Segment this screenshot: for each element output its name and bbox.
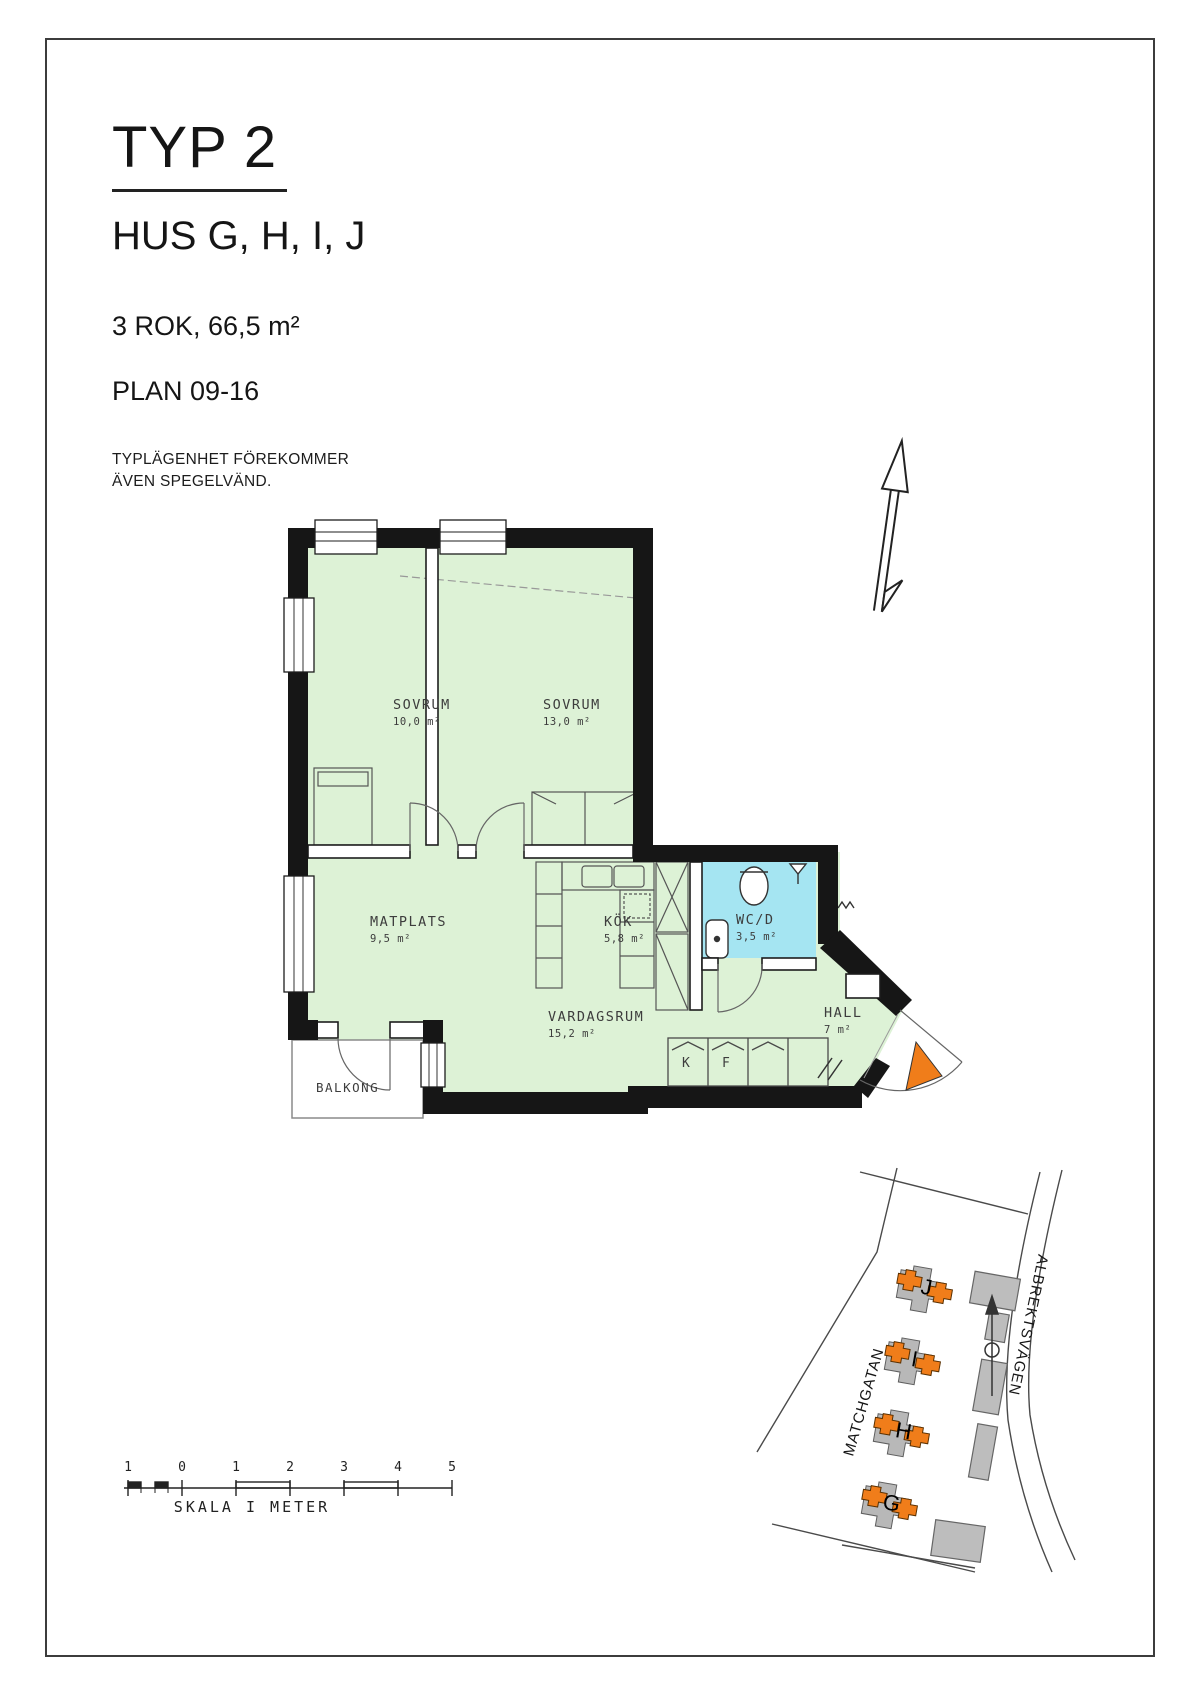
houses-subtitle: HUS G, H, I, J xyxy=(112,214,365,259)
room-label-sovrum-1: SOVRUM 10,0 m² xyxy=(393,697,451,728)
room-area: 13,0 m² xyxy=(543,716,601,728)
room-name: BALKONG xyxy=(316,1080,379,1095)
title-block: TYP 2 HUS G, H, I, J 3 ROK, 66,5 m² PLAN… xyxy=(112,118,365,493)
site-plan: J I H G xyxy=(757,1168,1075,1572)
site-building-G: G xyxy=(858,1479,921,1532)
scale-bar xyxy=(124,1480,452,1496)
drawing-sheet: J I H G xyxy=(0,0,1200,1697)
scale-number: 1 xyxy=(232,1460,240,1475)
scale-caption: SKALA I METER xyxy=(174,1498,330,1516)
street-matchgatan-line xyxy=(757,1168,897,1452)
mirror-note-line2: ÄVEN SPEGELVÄND. xyxy=(112,471,365,493)
scale-number: 3 xyxy=(340,1460,348,1475)
radiator-icon xyxy=(838,902,854,908)
site-buildings-gray xyxy=(931,1271,1021,1562)
mirror-note-line1: TYPLÄGENHET FÖREKOMMER xyxy=(112,449,365,471)
plan-levels: PLAN 09-16 xyxy=(112,376,365,407)
mirror-note: TYPLÄGENHET FÖREKOMMER ÄVEN SPEGELVÄND. xyxy=(112,449,365,493)
site-building-I: I xyxy=(881,1335,944,1388)
scale-number: 5 xyxy=(448,1460,456,1475)
room-name: SOVRUM xyxy=(393,697,451,713)
room-area: 15,2 m² xyxy=(548,1028,644,1040)
north-arrow-icon xyxy=(865,439,922,614)
room-label-kok: KÖK 5,8 m² xyxy=(604,914,645,945)
room-name: VARDAGSRUM xyxy=(548,1009,644,1025)
closet-label-f: F xyxy=(722,1056,730,1071)
room-name: KÖK xyxy=(604,914,645,930)
room-label-matplats: MATPLATS 9,5 m² xyxy=(370,914,447,945)
room-area: 10,0 m² xyxy=(393,716,451,728)
scale-number: 4 xyxy=(394,1460,402,1475)
room-name: SOVRUM xyxy=(543,697,601,713)
room-label-sovrum-2: SOVRUM 13,0 m² xyxy=(543,697,601,728)
hall-niche xyxy=(846,974,880,998)
closet-label-k: K xyxy=(682,1056,690,1071)
scale-number: 0 xyxy=(178,1460,186,1475)
room-area: 9,5 m² xyxy=(370,933,447,945)
room-label-hall: HALL 7 m² xyxy=(824,1005,863,1036)
page-title: TYP 2 xyxy=(112,118,287,192)
room-label-balkong: BALKONG xyxy=(316,1080,379,1095)
scale-number: 1 xyxy=(124,1460,132,1475)
room-area: 3,5 m² xyxy=(736,931,777,943)
site-building-J: J xyxy=(893,1263,956,1316)
room-area: 7 m² xyxy=(824,1024,863,1036)
apartment-size: 3 ROK, 66,5 m² xyxy=(112,311,365,342)
room-label-vardagsrum: VARDAGSRUM 15,2 m² xyxy=(548,1009,644,1040)
room-area: 5,8 m² xyxy=(604,933,645,945)
room-name: MATPLATS xyxy=(370,914,447,930)
site-building-H: H xyxy=(870,1407,933,1460)
room-name: HALL xyxy=(824,1005,863,1021)
room-label-wcd: WC/D 3,5 m² xyxy=(736,912,777,943)
scale-number: 2 xyxy=(286,1460,294,1475)
room-name: WC/D xyxy=(736,912,777,928)
